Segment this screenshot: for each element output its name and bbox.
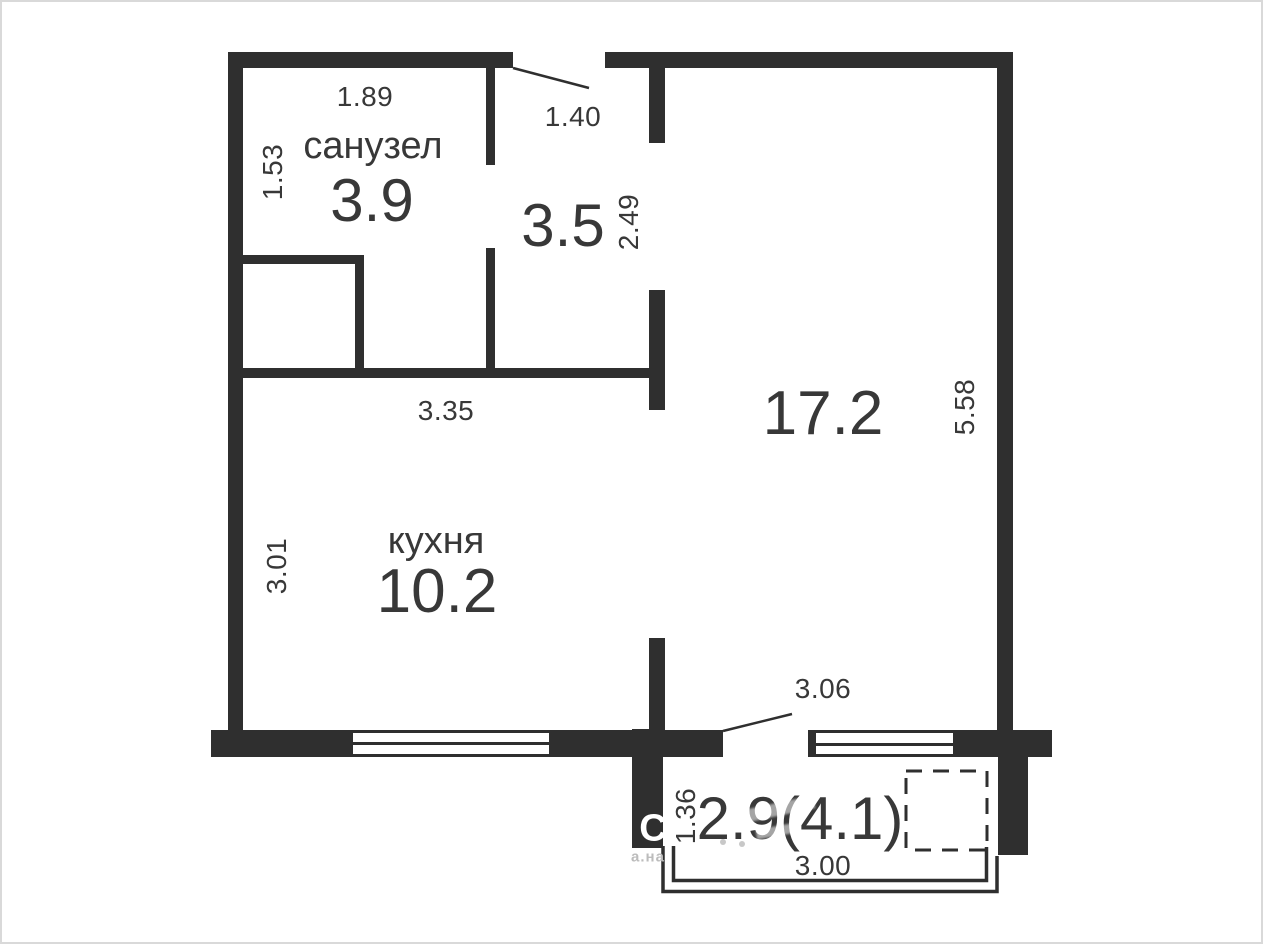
- watermark-dot: [739, 841, 745, 847]
- area-label-hallway: 3.5: [521, 196, 604, 256]
- area-label-bathroom: 3.9: [330, 171, 413, 231]
- window-kitchen: [353, 732, 549, 756]
- wall-divider-upper: [649, 52, 665, 143]
- room-label-bathroom: санузел: [303, 127, 442, 165]
- dimension-label-hallway-width: 3.35: [418, 397, 475, 425]
- balcony-dashed-area: [906, 771, 987, 850]
- wall-bathroom-lower: [486, 248, 495, 372]
- window-living: [814, 732, 953, 756]
- watermark-initial: C: [639, 808, 666, 851]
- wall-bathroom-upper: [486, 68, 495, 165]
- wall-top-left: [228, 52, 513, 68]
- area-label-kitchen: 10.2: [377, 561, 498, 623]
- watermark-dot: [720, 839, 726, 845]
- dimension-label-living-width: 3.06: [795, 675, 852, 703]
- wall-bottom-left: [211, 730, 353, 757]
- wall-top-right: [605, 52, 1013, 68]
- room-label-kitchen: кухня: [388, 522, 485, 560]
- wall-hall-bottom: [243, 368, 649, 378]
- wall-right: [997, 52, 1013, 757]
- dimension-label-kitchen-depth: 3.01: [263, 538, 291, 595]
- wall-bottom-right: [953, 730, 1052, 757]
- dimension-label-bathroom-depth: 1.53: [259, 144, 287, 201]
- wall-divider-middle: [649, 290, 665, 410]
- leader-balcony-door: [723, 714, 792, 731]
- floor-plan-drawing: [0, 0, 1263, 948]
- wall-divider-lower: [649, 638, 665, 730]
- dimension-label-entry-opening: 1.40: [545, 103, 602, 131]
- wall-duct-top: [243, 255, 364, 264]
- dimension-label-balcony-depth: 1.36: [672, 788, 700, 845]
- dimension-label-balcony-width: 3.00: [795, 852, 852, 880]
- floor-plan-canvas: санузел кухня 3.9 3.5 17.2 10.2 2.9(4.1)…: [0, 0, 1263, 948]
- area-label-living-room: 17.2: [763, 383, 884, 445]
- dimension-label-hallway-depth: 2.49: [615, 194, 643, 251]
- dimension-label-bathroom-width: 1.89: [337, 83, 394, 111]
- leader-entry-opening: [513, 68, 589, 88]
- wall-left: [228, 52, 243, 730]
- dimension-label-living-depth: 5.58: [951, 379, 979, 436]
- wall-balcony-right: [998, 757, 1028, 855]
- wall-duct-side: [355, 255, 364, 372]
- watermark-fragment: а.на: [631, 849, 665, 866]
